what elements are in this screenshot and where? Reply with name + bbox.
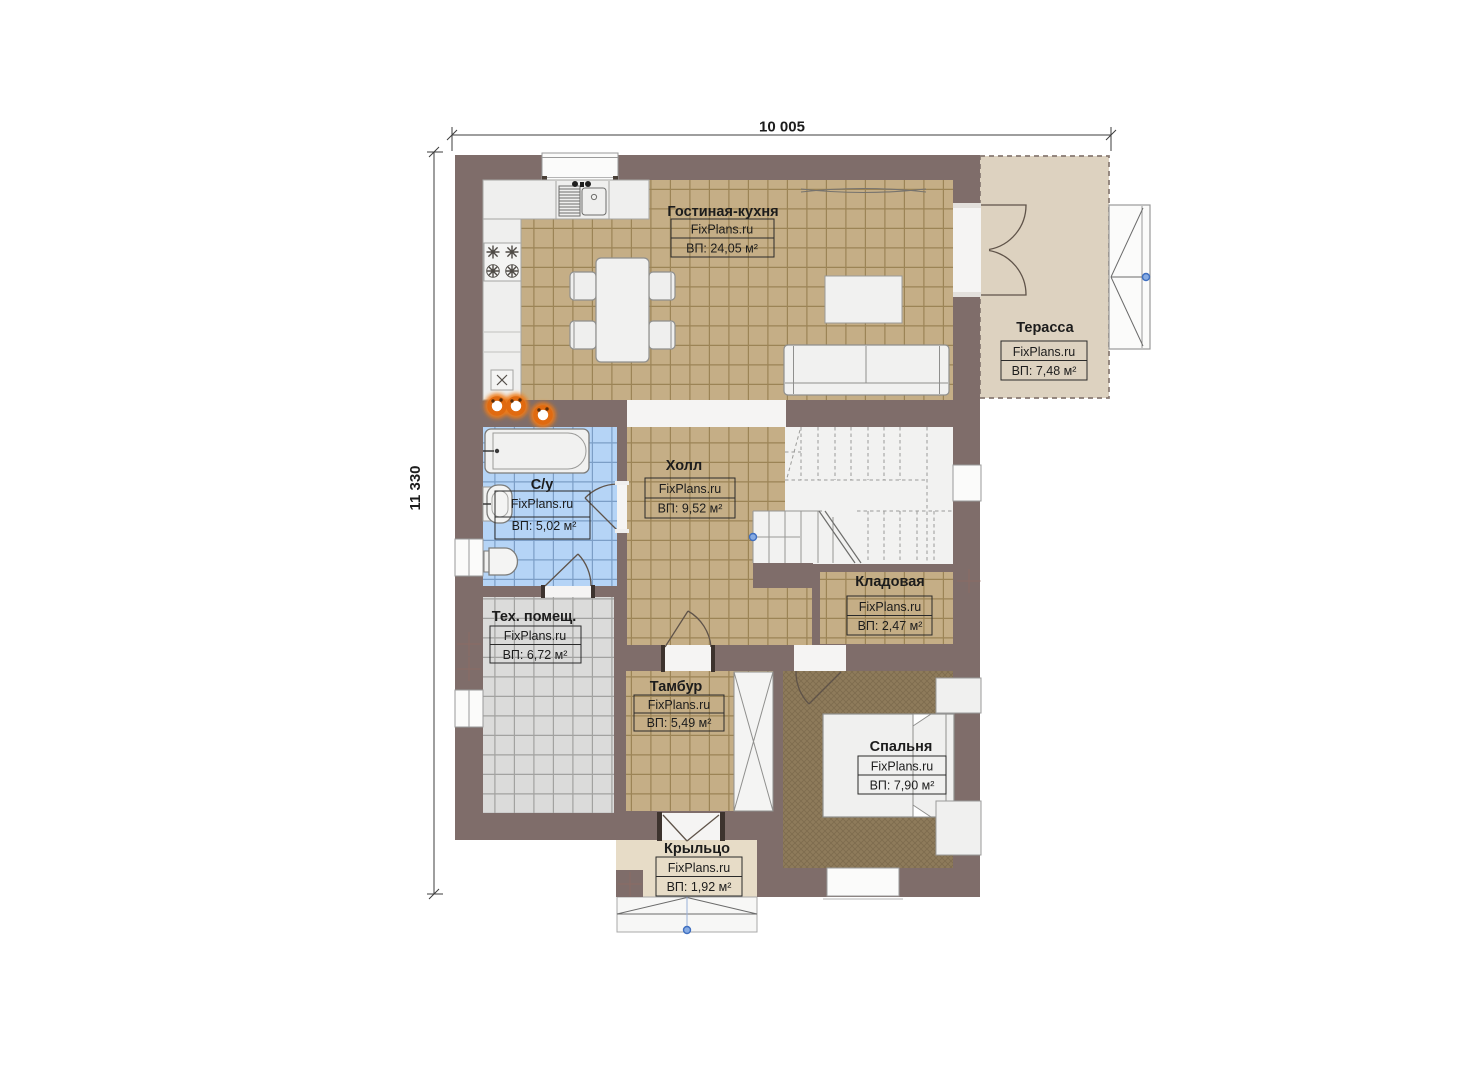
svg-text:Гостиная-кухня: Гостиная-кухня <box>667 204 778 220</box>
svg-text:FixPlans.ru: FixPlans.ru <box>668 861 731 875</box>
svg-text:ВП: 9,52 м²: ВП: 9,52 м² <box>658 502 723 516</box>
svg-text:11 330: 11 330 <box>407 465 424 510</box>
svg-text:Тех. помещ.: Тех. помещ. <box>492 609 577 625</box>
svg-text:FixPlans.ru: FixPlans.ru <box>691 223 754 237</box>
svg-text:ВП: 7,48 м²: ВП: 7,48 м² <box>1012 364 1077 378</box>
svg-text:ВП: 2,47 м²: ВП: 2,47 м² <box>858 619 923 633</box>
svg-text:Крыльцо: Крыльцо <box>664 841 730 857</box>
svg-text:ВП: 24,05 м²: ВП: 24,05 м² <box>686 242 758 256</box>
svg-text:ВП: 7,90 м²: ВП: 7,90 м² <box>870 779 935 793</box>
svg-text:ВП: 5,02 м²: ВП: 5,02 м² <box>512 519 577 533</box>
svg-text:10 005: 10 005 <box>759 119 805 136</box>
svg-text:FixPlans.ru: FixPlans.ru <box>859 600 922 614</box>
svg-text:FixPlans.ru: FixPlans.ru <box>511 497 574 511</box>
svg-text:FixPlans.ru: FixPlans.ru <box>504 629 567 643</box>
svg-text:FixPlans.ru: FixPlans.ru <box>648 698 711 712</box>
svg-text:FixPlans.ru: FixPlans.ru <box>1013 345 1076 359</box>
svg-text:ВП: 6,72 м²: ВП: 6,72 м² <box>503 648 568 662</box>
svg-text:ВП: 1,92 м²: ВП: 1,92 м² <box>667 880 732 894</box>
svg-text:Тамбур: Тамбур <box>650 679 703 695</box>
svg-text:Холл: Холл <box>666 458 702 474</box>
svg-text:Терасса: Терасса <box>1016 320 1074 336</box>
svg-text:ВП: 5,49 м²: ВП: 5,49 м² <box>647 716 712 730</box>
svg-text:FixPlans.ru: FixPlans.ru <box>659 482 722 496</box>
svg-text:Кладовая: Кладовая <box>855 574 924 590</box>
svg-text:Спальня: Спальня <box>870 739 933 755</box>
svg-text:FixPlans.ru: FixPlans.ru <box>871 760 934 774</box>
